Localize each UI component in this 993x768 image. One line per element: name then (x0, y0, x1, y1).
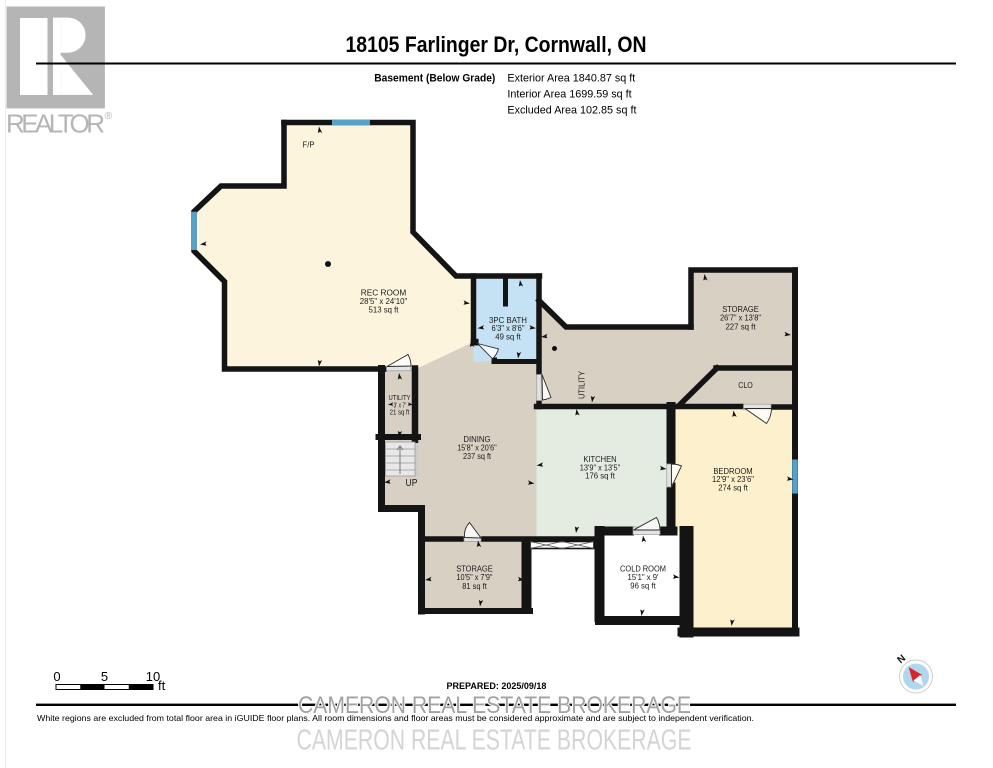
svg-text:CAMERON REAL ESTATE BROKERAGE: CAMERON REAL ESTATE BROKERAGE (297, 725, 692, 757)
svg-text:96 sq ft: 96 sq ft (630, 581, 656, 591)
svg-text:5: 5 (101, 669, 108, 684)
svg-text:513 sq ft: 513 sq ft (369, 304, 399, 314)
svg-text:Basement (Below Grade): Basement (Below Grade) (374, 73, 495, 85)
svg-text:18105 Farlinger Dr, Cornwall,: 18105 Farlinger Dr, Cornwall, ON (346, 32, 647, 57)
svg-text:UP: UP (406, 477, 418, 489)
svg-text:CLO: CLO (738, 380, 753, 390)
svg-text:237 sq ft: 237 sq ft (463, 451, 491, 461)
svg-text:176 sq ft: 176 sq ft (585, 471, 615, 481)
svg-text:81 sq ft: 81 sq ft (462, 581, 487, 591)
svg-text:21 sq ft: 21 sq ft (390, 409, 410, 416)
svg-text:0: 0 (53, 669, 60, 684)
svg-text:49 sq ft: 49 sq ft (495, 332, 521, 342)
svg-text:227 sq ft: 227 sq ft (725, 321, 756, 331)
svg-text:274 sq ft: 274 sq ft (718, 483, 748, 493)
svg-text:Interior Area 1699.59 sq ft: Interior Area 1699.59 sq ft (507, 89, 631, 101)
svg-text:REALTOR: REALTOR (6, 109, 105, 139)
svg-text:ft: ft (158, 678, 166, 693)
svg-text:UTILITY: UTILITY (577, 371, 587, 399)
svg-text:Excluded Area 102.85 sq ft: Excluded Area 102.85 sq ft (507, 105, 636, 117)
svg-text:F/P: F/P (303, 140, 315, 150)
svg-text:3' x 7': 3' x 7' (394, 402, 407, 409)
svg-text:UTILITY: UTILITY (389, 395, 411, 402)
svg-text:®: ® (105, 110, 113, 122)
svg-text:PREPARED: 2025/09/18: PREPARED: 2025/09/18 (447, 681, 547, 691)
svg-text:White regions are excluded fro: White regions are excluded from total fl… (37, 713, 754, 723)
svg-text:Exterior Area 1840.87 sq ft: Exterior Area 1840.87 sq ft (507, 73, 635, 85)
